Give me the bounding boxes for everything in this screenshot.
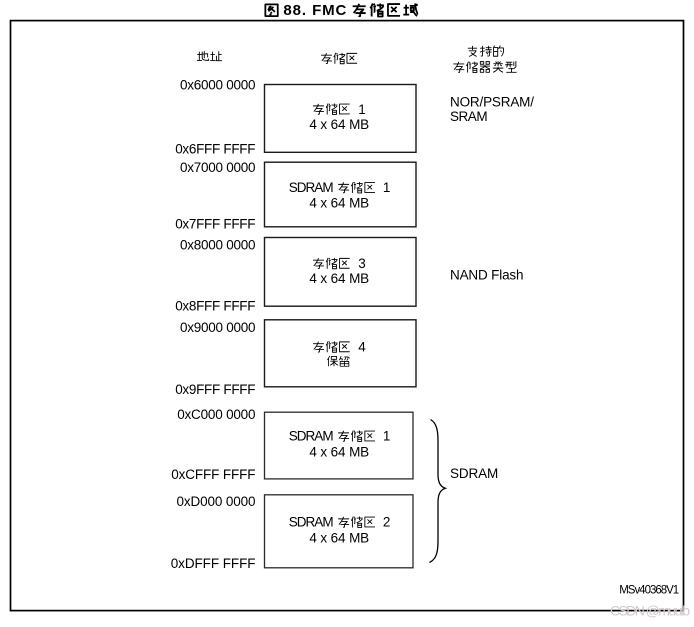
svg-text:0x8000 0000: 0x8000 0000: [180, 237, 256, 252]
svg-text:4 x 64 MB: 4 x 64 MB: [309, 271, 369, 286]
svg-text:SRAM: SRAM: [450, 109, 488, 124]
svg-text:SDRAM: SDRAM: [289, 429, 334, 444]
svg-text:0xC000 0000: 0xC000 0000: [177, 407, 255, 422]
svg-text:1: 1: [383, 429, 391, 444]
svg-text:3: 3: [358, 256, 366, 271]
svg-text:0x8FFF FFFF: 0x8FFF FFFF: [175, 298, 255, 313]
svg-text:1: 1: [383, 180, 391, 195]
svg-text:0xD000 0000: 0xD000 0000: [177, 494, 256, 509]
svg-text:NAND Flash: NAND Flash: [450, 268, 524, 283]
svg-text:SDRAM: SDRAM: [289, 180, 334, 195]
svg-text:0xDFFF FFFF: 0xDFFF FFFF: [171, 556, 256, 571]
svg-text:SDRAM: SDRAM: [450, 466, 498, 481]
svg-text:4 x 64 MB: 4 x 64 MB: [309, 196, 369, 211]
svg-text:4 x 64 MB: 4 x 64 MB: [309, 445, 369, 460]
svg-text:0x9000 0000: 0x9000 0000: [180, 320, 256, 335]
svg-text:CSDN @muuib: CSDN @muuib: [610, 603, 690, 619]
svg-text:0x9FFF FFFF: 0x9FFF FFFF: [175, 382, 255, 397]
svg-text:NOR/PSRAM/: NOR/PSRAM/: [450, 94, 534, 109]
svg-text:4 x 64 MB: 4 x 64 MB: [309, 117, 369, 132]
svg-text:1: 1: [358, 102, 366, 117]
svg-text:0x6000 0000: 0x6000 0000: [180, 77, 256, 92]
svg-text:MSv40368V1: MSv40368V1: [619, 584, 679, 596]
svg-text:0xCFFF FFFF: 0xCFFF FFFF: [171, 467, 255, 482]
svg-text:0x7FFF FFFF: 0x7FFF FFFF: [175, 216, 255, 231]
svg-text:SDRAM: SDRAM: [289, 515, 334, 530]
svg-text:0x7000 0000: 0x7000 0000: [180, 160, 256, 175]
svg-text:88. FMC: 88. FMC: [283, 2, 346, 19]
svg-text:4 x 64 MB: 4 x 64 MB: [309, 530, 369, 545]
svg-text:2: 2: [383, 515, 391, 530]
svg-text:4: 4: [358, 340, 366, 355]
svg-text:0x6FFF FFFF: 0x6FFF FFFF: [175, 142, 255, 157]
